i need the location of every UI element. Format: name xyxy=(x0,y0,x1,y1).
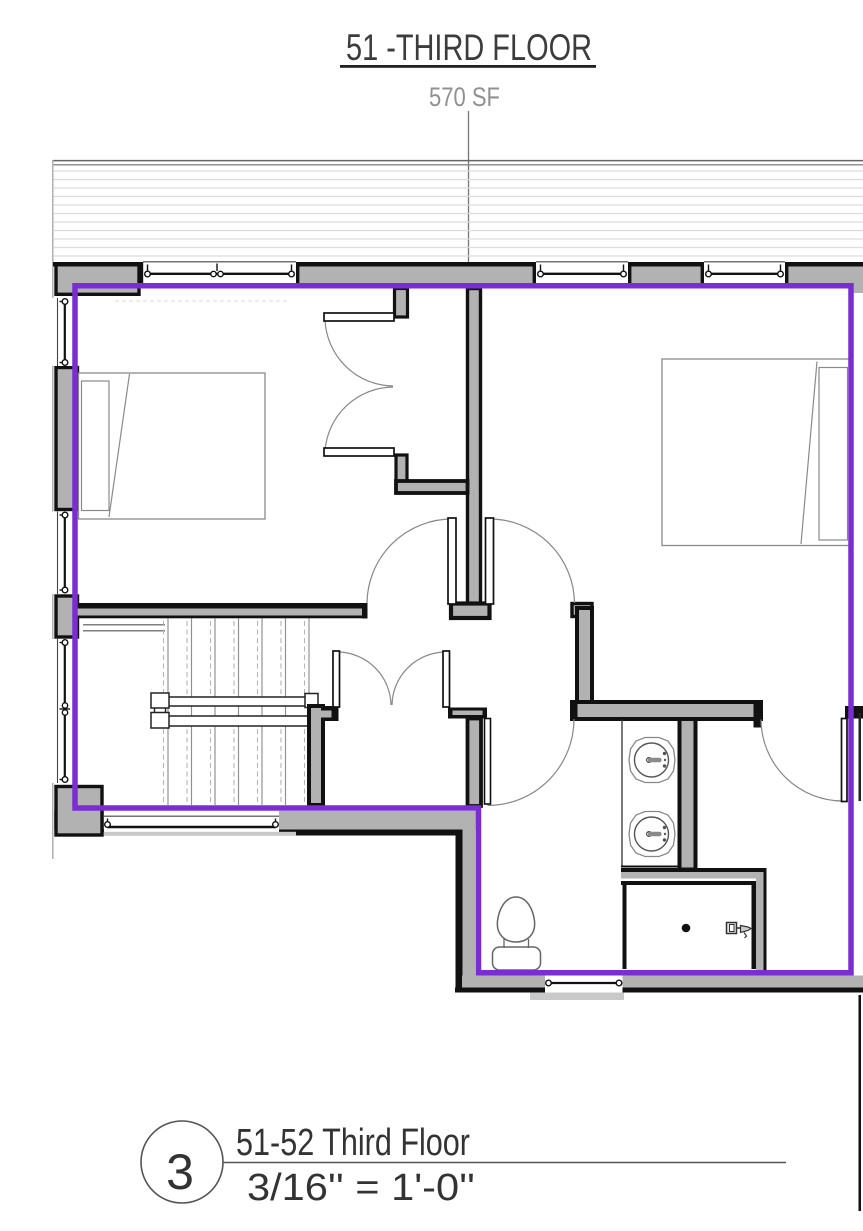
svg-text:51 -THIRD FLOOR: 51 -THIRD FLOOR xyxy=(346,27,592,68)
svg-text:51-52 Third Floor: 51-52 Third Floor xyxy=(236,1122,470,1164)
svg-text:3: 3 xyxy=(166,1144,194,1200)
svg-text:570 SF: 570 SF xyxy=(429,82,500,112)
svg-text:3/16'' = 1'-0'': 3/16'' = 1'-0'' xyxy=(247,1167,475,1209)
